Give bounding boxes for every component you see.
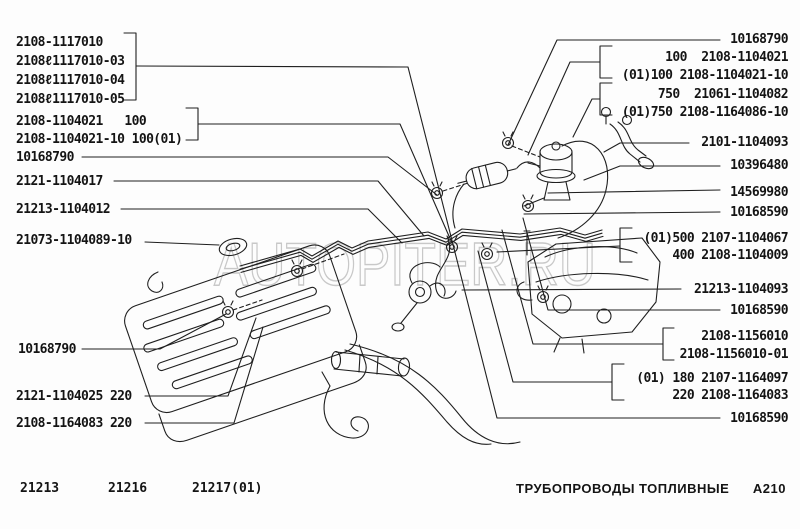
model-code: 21217(01) <box>192 481 262 496</box>
part-number: 10168790 <box>18 343 76 357</box>
part-number: 21073-1104089-10 <box>16 234 132 248</box>
part-number: (01)500 2107-1104067 <box>643 232 788 246</box>
part-number: (01)750 2108-1164086-10 <box>622 106 788 120</box>
part-number: 2108-1104021-10 100(01) <box>16 133 182 147</box>
part-number: 10168790 <box>16 151 74 165</box>
part-number: 2108-1104021 100 <box>16 115 146 129</box>
part-number: 21213-1104012 <box>16 203 110 217</box>
leader-lines <box>82 33 720 423</box>
part-number: 2108-1156010-01 <box>680 348 788 362</box>
part-number: 2121-1104017 <box>16 175 103 189</box>
part-number: 2108ℓ1117010-03 <box>16 55 124 69</box>
part-number: 10168590 <box>730 304 788 318</box>
part-number: 10168590 <box>730 206 788 220</box>
part-number: 21213-1104093 <box>694 283 788 297</box>
fuel-pump <box>524 141 608 238</box>
part-number: 2101-1104093 <box>701 136 788 150</box>
part-number: 100 2108-1104021 <box>665 51 788 65</box>
part-number: 10168790 <box>730 33 788 47</box>
part-number: 2108-1164083 220 <box>16 417 132 431</box>
part-number: 400 2108-1104009 <box>672 249 788 263</box>
part-number: 2121-1104025 220 <box>16 390 132 404</box>
part-number: 2108-1156010 <box>701 330 788 344</box>
model-code: 21216 <box>108 481 147 496</box>
catalog-page: AUTOPITER.RU <box>0 0 800 529</box>
filler-tube <box>322 344 520 444</box>
part-number: (01)100 2108-1104021-10 <box>622 69 788 83</box>
part-number: 10168590 <box>730 412 788 426</box>
part-number: (01) 180 2107-1164097 <box>636 372 788 386</box>
part-number: 10396480 <box>730 159 788 173</box>
part-number: 2108-1117010 <box>16 36 103 50</box>
part-number: 2108ℓ1117010-05 <box>16 93 124 107</box>
part-number: 14569980 <box>730 186 788 200</box>
drawing-code: A210 <box>753 481 786 496</box>
part-number: 750 21061-1104082 <box>658 88 788 102</box>
part-number: 2108ℓ1117010-04 <box>16 74 124 88</box>
fuel-filter <box>453 158 540 228</box>
model-code: 21213 <box>20 481 59 496</box>
page-title: ТРУБОПРОВОДЫ ТОПЛИВНЫЕ <box>516 481 729 496</box>
part-number: 220 2108-1164083 <box>672 389 788 403</box>
